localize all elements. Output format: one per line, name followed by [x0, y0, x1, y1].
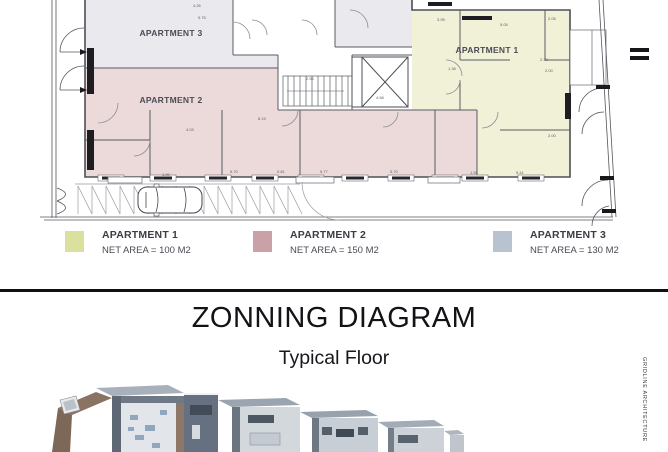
apartment1-label: APARTMENT 1 — [455, 45, 518, 55]
entry-doors-right — [579, 88, 609, 226]
apartment1-color-swatch — [65, 231, 84, 252]
axonometric-render — [0, 385, 668, 452]
floor-plan: APARTMENT 3 APARTMENT 2 APARTMENT 1 4.26… — [0, 0, 668, 226]
page-title: ZONNING DIAGRAM — [0, 302, 668, 335]
legend-label: APARTMENT 2 — [290, 229, 379, 241]
car-icon — [138, 184, 202, 216]
legend: APARTMENT 1 NET AREA = 100 M2 APARTMENT … — [0, 227, 668, 279]
apartment2-label: APARTMENT 2 — [139, 95, 202, 105]
legend-label: APARTMENT 1 — [102, 229, 191, 241]
section-divider — [0, 289, 668, 292]
legend-net-area: NET AREA = 130 M2 — [530, 245, 619, 256]
stairs — [283, 76, 352, 106]
page-subtitle: Typical Floor — [0, 347, 668, 370]
credit-vertical-text: GRIDLINE ARCHITECTURE — [641, 357, 647, 452]
legend-net-area: NET AREA = 100 M2 — [102, 245, 191, 256]
legend-item-apartment3: APARTMENT 3 NET AREA = 130 M2 — [493, 229, 619, 256]
apartment3-color-swatch — [493, 231, 512, 252]
apartment2-color-swatch — [253, 231, 272, 252]
apartment3-label: APARTMENT 3 — [139, 28, 202, 38]
hinge-marks — [596, 85, 616, 213]
elevator-shaft — [352, 57, 408, 107]
equals-mark-icon — [630, 48, 649, 60]
legend-label: APARTMENT 3 — [530, 229, 619, 241]
floor-plan-drawing: APARTMENT 3 APARTMENT 2 APARTMENT 1 — [0, 0, 668, 226]
parking-area — [75, 182, 340, 220]
legend-net-area: NET AREA = 150 M2 — [290, 245, 379, 256]
legend-item-apartment1: APARTMENT 1 NET AREA = 100 M2 — [65, 229, 191, 256]
legend-item-apartment2: APARTMENT 2 NET AREA = 150 M2 — [253, 229, 379, 256]
entry-doors-left — [57, 28, 84, 214]
